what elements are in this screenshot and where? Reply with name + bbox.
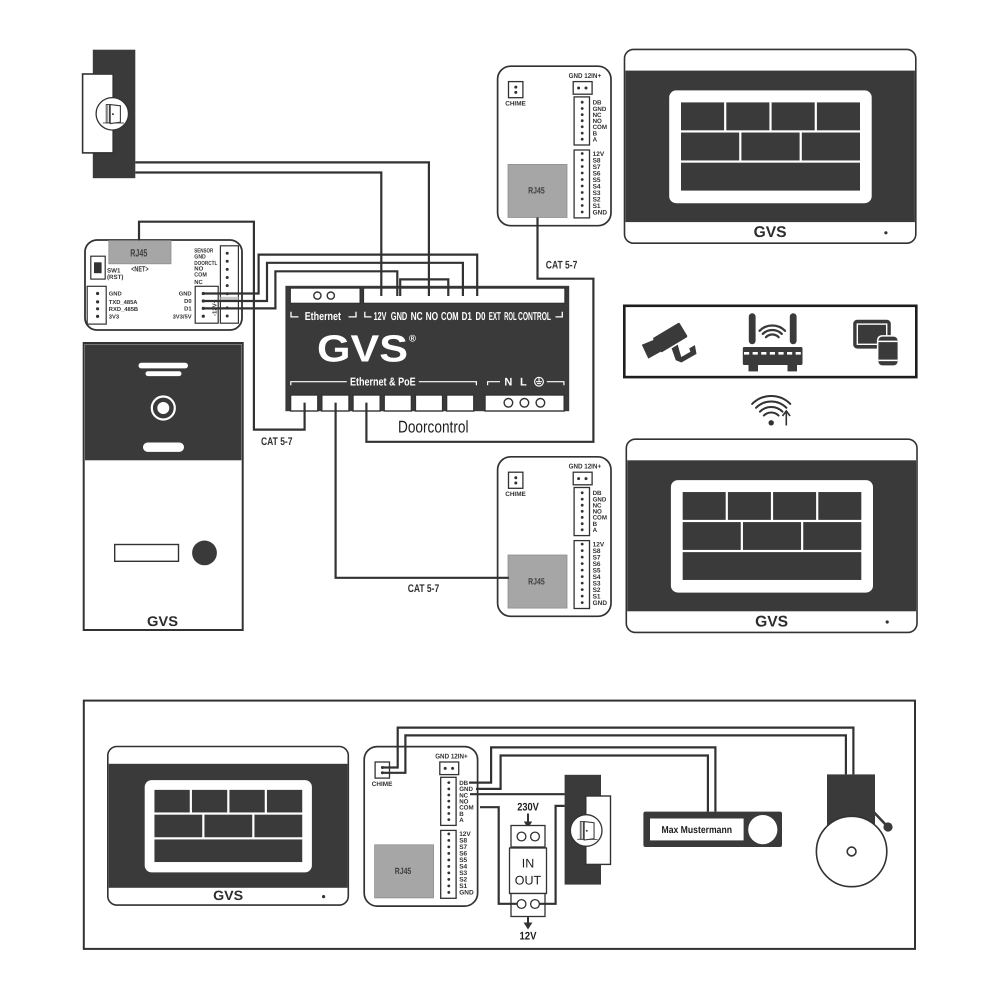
svg-text:A: A [593,137,598,144]
svg-text:GND 12IN+: GND 12IN+ [569,73,602,80]
svg-text:RJ45: RJ45 [130,247,147,259]
svg-text:GVS: GVS [317,329,408,371]
svg-text:GND: GND [194,254,206,261]
svg-text:NO: NO [194,265,203,272]
svg-text:12V: 12V [520,931,538,943]
svg-text:NO: NO [426,311,439,323]
svg-text:IN: IN [522,857,535,871]
svg-text:CAT 5-7: CAT 5-7 [408,583,440,595]
svg-text:N: N [504,377,512,389]
svg-text:GND 12IN+: GND 12IN+ [569,464,602,471]
svg-text:CONTROL: CONTROL [518,311,551,323]
svg-text:TXD_485A: TXD_485A [109,299,138,306]
svg-text:D0: D0 [184,298,191,305]
svg-text:Doorcontrol: Doorcontrol [398,417,469,436]
svg-text:RJ45: RJ45 [528,576,545,586]
svg-text:GVS: GVS [147,613,178,629]
svg-text:GND: GND [109,291,122,298]
svg-text:CHIME: CHIME [505,101,526,108]
svg-text:NC: NC [194,279,203,286]
svg-text:NC: NC [411,311,423,323]
svg-text:CAT 5-7: CAT 5-7 [261,436,293,448]
svg-text:CHIME: CHIME [505,491,526,498]
svg-text:EXT: EXT [489,311,501,323]
svg-text:GVS: GVS [754,224,787,241]
svg-text:OUT: OUT [515,874,542,888]
svg-text:Ethernet & PoE: Ethernet & PoE [350,377,416,389]
svg-text:GND: GND [593,600,608,607]
svg-text:RXD_485B: RXD_485B [109,306,138,313]
svg-text:GND: GND [391,311,408,323]
svg-text:A: A [459,817,464,824]
svg-text:3V3/5V: 3V3/5V [173,313,192,320]
svg-text:RJ45: RJ45 [395,866,412,876]
svg-text:SENSOR: SENSOR [194,247,213,254]
svg-text:GVS: GVS [213,888,243,903]
svg-text:RJ45: RJ45 [528,186,545,196]
svg-text:12V: 12V [374,311,387,323]
svg-text:CAT 5-7: CAT 5-7 [546,259,578,271]
svg-text:GND: GND [593,209,608,216]
svg-text:3V3: 3V3 [109,314,120,321]
svg-text:D1: D1 [462,311,473,323]
svg-text:L: L [520,377,527,389]
svg-text:D1: D1 [184,307,192,313]
svg-text:GVS: GVS [755,613,788,630]
svg-text:Max Mustermann: Max Mustermann [662,825,733,836]
svg-text:ROL: ROL [504,311,516,323]
svg-text:COM: COM [194,272,207,279]
svg-text:230V: 230V [517,801,539,813]
svg-text:COM: COM [441,311,459,323]
svg-text:D0: D0 [476,311,486,323]
svg-text:GND: GND [459,890,474,897]
svg-text:Ethernet: Ethernet [305,311,341,323]
svg-text:GND: GND [179,291,192,298]
svg-text:GND 12IN+: GND 12IN+ [435,753,468,760]
svg-text:(RST): (RST) [107,274,124,281]
svg-text:A: A [593,527,598,534]
svg-text:CHIME: CHIME [372,781,393,788]
svg-text:<NET>: <NET> [131,264,149,273]
svg-text:®: ® [409,334,416,345]
